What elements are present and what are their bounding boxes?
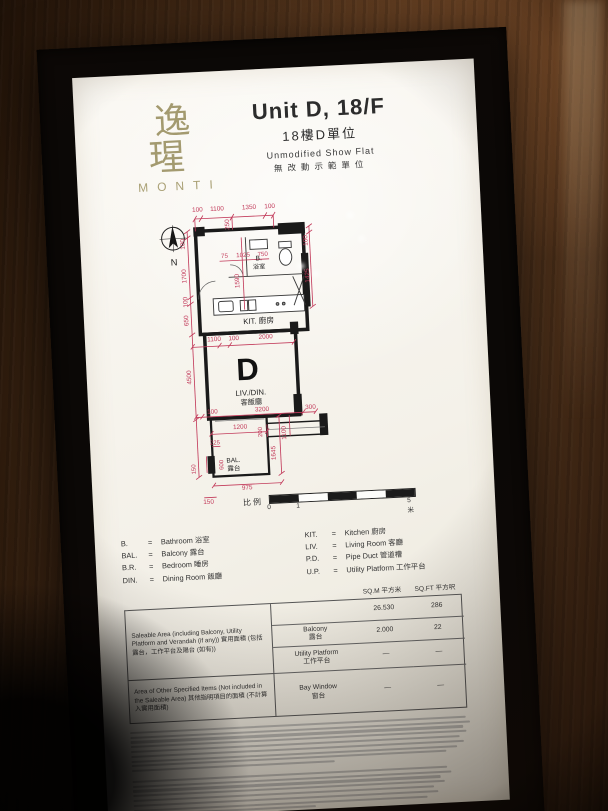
plan-labels: NB.浴室KIT. 廚房DLIV./DIN.客飯廳BAL.露台100110013… xyxy=(168,201,322,507)
dimension-label: 4500 xyxy=(186,370,194,385)
column-header-sqm: SQ.M 平方米 xyxy=(355,583,408,596)
saleable-sqft-value: 286 xyxy=(410,595,464,620)
other-items-label: Area of Other Specified Items (Not inclu… xyxy=(129,674,277,723)
header: 逸瑆 MONTI Unit D, 18/F 18樓D單位 Unmodified … xyxy=(72,59,479,198)
equals-sign: = xyxy=(149,573,163,586)
scale-tick-1: 1 xyxy=(296,503,300,510)
floor-plan: NB.浴室KIT. 廚房DLIV./DIN.客飯廳BAL.露台100110013… xyxy=(148,186,463,512)
equals-sign: = xyxy=(332,540,346,553)
unit-title: Unit D, 18/F xyxy=(251,93,385,125)
scale-tick-0: 0 xyxy=(267,504,271,511)
dimension-label: 100 xyxy=(192,206,203,214)
legend-right-column: KIT.=Kitchen 廚房 LIV.=Living Room 客廳 P.D.… xyxy=(304,521,484,579)
dimension-label: 1700 xyxy=(181,269,189,284)
equals-sign: = xyxy=(331,527,345,540)
dimension-label: 1100 xyxy=(207,336,222,344)
dimension-label: 1350 xyxy=(242,204,257,212)
abbreviation-legend: B.=Bathroom 浴室 BAL.=Balcony 露台 B.R.=Bedr… xyxy=(121,520,499,587)
dimension-label: 975 xyxy=(242,484,253,492)
sign-panel: 逸瑆 MONTI Unit D, 18/F 18樓D單位 Unmodified … xyxy=(72,59,510,811)
dimension-label: 100 xyxy=(207,408,218,416)
brand-logo: 逸瑆 MONTI xyxy=(117,101,229,196)
brand-logo-chinese: 逸瑆 xyxy=(117,101,228,178)
room-label: KIT. 廚房 xyxy=(243,315,275,327)
dimension-label: 1425 xyxy=(304,268,312,283)
room-label: 浴室 xyxy=(253,262,266,271)
dimension-label: 600 xyxy=(219,459,226,470)
balcony-sqft-value: 22 xyxy=(411,617,465,642)
dimension-label: 2000 xyxy=(258,333,273,341)
wall-light-reflection xyxy=(564,0,602,420)
dimension-label: 100 xyxy=(264,203,275,211)
legend-left-column: B.=Bathroom 浴室 BAL.=Balcony 露台 B.R.=Bedr… xyxy=(121,530,301,588)
dimension-label: 750 xyxy=(257,251,268,259)
dimension-label: 1025 xyxy=(236,252,251,260)
column-header-sqft: SQ.FT 平方呎 xyxy=(408,581,461,594)
room-label: BAL. xyxy=(226,457,241,465)
area-table: SQ.M 平方米 SQ.FT 平方呎 Saleable Area (includ… xyxy=(123,581,467,724)
legend-abbr: U.P. xyxy=(306,565,334,579)
equals-sign: = xyxy=(333,552,347,565)
dimension-label: 150 xyxy=(191,464,198,475)
dimension-label: 1645 xyxy=(270,445,278,460)
fine-print-notes xyxy=(130,715,484,811)
room-label: D xyxy=(236,351,260,387)
dimension-label: 100 xyxy=(179,238,187,249)
equals-sign: = xyxy=(148,536,162,549)
bay-window-item: Bay Window 窗台 xyxy=(274,670,362,716)
dimension-label: 1100 xyxy=(281,425,289,440)
equals-sign: = xyxy=(149,561,163,574)
dimension-label: 225 xyxy=(210,440,221,447)
dimension-label: 200 xyxy=(258,426,265,437)
equals-sign: = xyxy=(148,549,162,562)
equals-sign: = xyxy=(333,564,347,577)
dimension-label: 300 xyxy=(305,404,316,412)
dimension-label: 100 xyxy=(302,235,310,246)
dimension-label: 100 xyxy=(182,296,190,307)
dimension-label: 250 xyxy=(224,219,232,230)
unit-title-chinese: 18樓D單位 xyxy=(253,121,387,146)
saleable-sqm-value: 26.530 xyxy=(357,597,411,622)
bay-window-sqm-value: — xyxy=(360,667,415,712)
dimension-label: 1100 xyxy=(210,205,225,213)
utility-sqm-value: — xyxy=(359,641,413,670)
legend-abbr: DIN. xyxy=(122,574,150,588)
dimension-label: 1200 xyxy=(233,423,248,431)
dimension-label: 150 xyxy=(203,499,214,507)
room-label: N xyxy=(171,257,178,267)
saleable-area-label: Saleable Area (including Balcony, Utilit… xyxy=(125,604,274,681)
lightbox-frame: 逸瑆 MONTI Unit D, 18/F 18樓D單位 Unmodified … xyxy=(37,27,546,811)
utility-sqft-value: — xyxy=(412,639,466,668)
floor-plan-drawing: NB.浴室KIT. 廚房DLIV./DIN.客飯廳BAL.露台100110013… xyxy=(148,186,463,512)
dimension-label: 75 xyxy=(221,253,229,260)
unit-title-block: Unit D, 18/F 18樓D單位 Unmodified Show Flat… xyxy=(251,93,388,175)
dimension-label: 100 xyxy=(228,335,239,343)
photo-of-showflat-lightbox-sign: 逸瑆 MONTI Unit D, 18/F 18樓D單位 Unmodified … xyxy=(0,0,608,811)
dimension-label: 650 xyxy=(183,315,191,326)
scale-tick-5m: 5米 xyxy=(407,497,417,514)
balcony-sqm-value: 2.000 xyxy=(358,619,412,644)
bay-window-sqft-value: — xyxy=(413,664,468,709)
dimension-label: 3200 xyxy=(255,406,270,414)
dimension-label: 1590 xyxy=(234,273,242,288)
room-label: 露台 xyxy=(227,463,240,473)
brand-logo-latin: MONTI xyxy=(121,177,230,196)
